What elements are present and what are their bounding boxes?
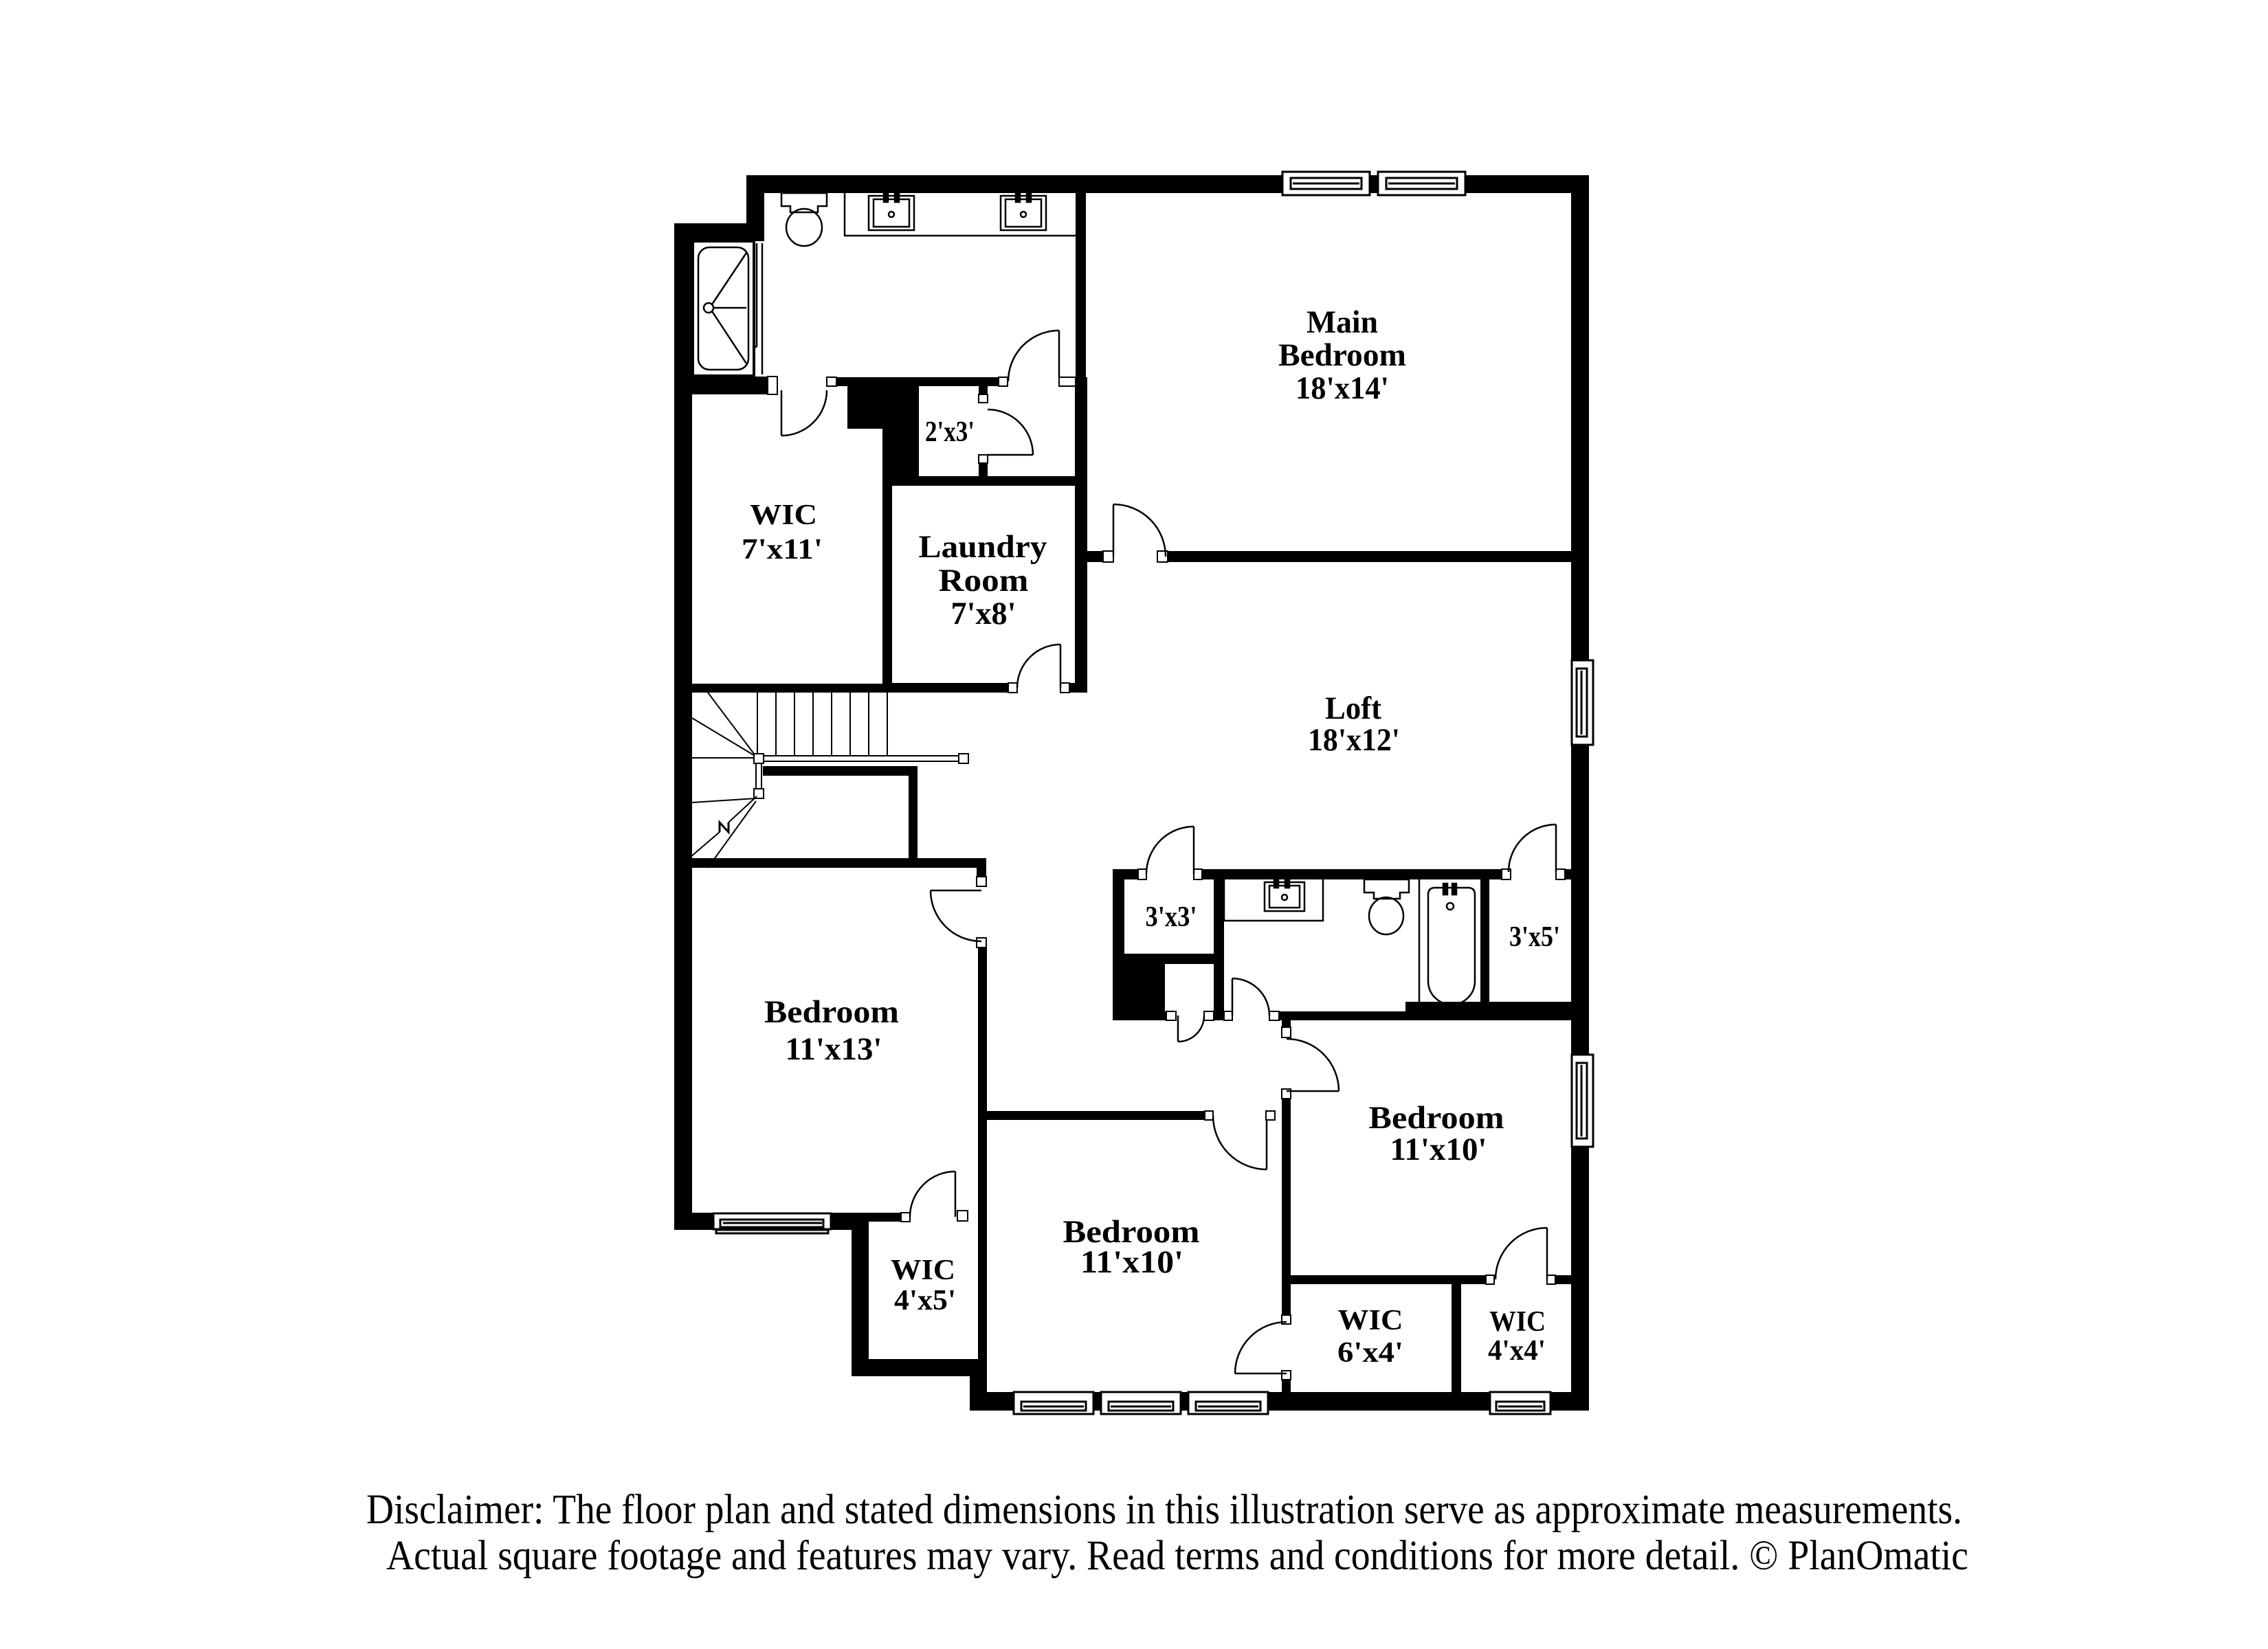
svg-text:Disclaimer: The floor plan and: Disclaimer: The floor plan and stated di…: [366, 1487, 1962, 1533]
svg-text:Room: Room: [939, 563, 1029, 598]
svg-text:7'x11': 7'x11': [742, 534, 823, 565]
svg-text:Actual square footage and feat: Actual square footage and features may v…: [386, 1533, 1968, 1579]
svg-text:Bedroom: Bedroom: [1278, 337, 1406, 373]
svg-text:Bedroom: Bedroom: [1369, 1100, 1504, 1136]
svg-text:11'x10': 11'x10': [1390, 1132, 1487, 1167]
svg-text:6'x4': 6'x4': [1337, 1337, 1403, 1369]
svg-text:Laundry: Laundry: [919, 529, 1048, 565]
svg-text:4'x4': 4'x4': [1488, 1335, 1546, 1367]
svg-text:Bedroom: Bedroom: [764, 994, 899, 1030]
svg-text:Loft: Loft: [1325, 691, 1381, 726]
svg-text:WIC: WIC: [750, 500, 817, 531]
svg-text:WIC: WIC: [1489, 1306, 1546, 1338]
svg-text:11'x10': 11'x10': [1080, 1244, 1183, 1280]
svg-text:18'x12': 18'x12': [1308, 722, 1400, 758]
svg-text:7'x8': 7'x8': [951, 596, 1016, 631]
svg-text:18'x14': 18'x14': [1296, 370, 1389, 406]
svg-text:2'x3': 2'x3': [925, 416, 975, 448]
svg-text:WIC: WIC: [1338, 1305, 1403, 1336]
svg-text:3'x3': 3'x3': [1146, 901, 1197, 933]
svg-text:11'x13': 11'x13': [786, 1031, 882, 1067]
svg-text:Main: Main: [1307, 304, 1378, 340]
svg-text:4'x5': 4'x5': [894, 1285, 956, 1316]
svg-text:WIC: WIC: [891, 1255, 955, 1286]
svg-text:3'x5': 3'x5': [1509, 921, 1560, 953]
